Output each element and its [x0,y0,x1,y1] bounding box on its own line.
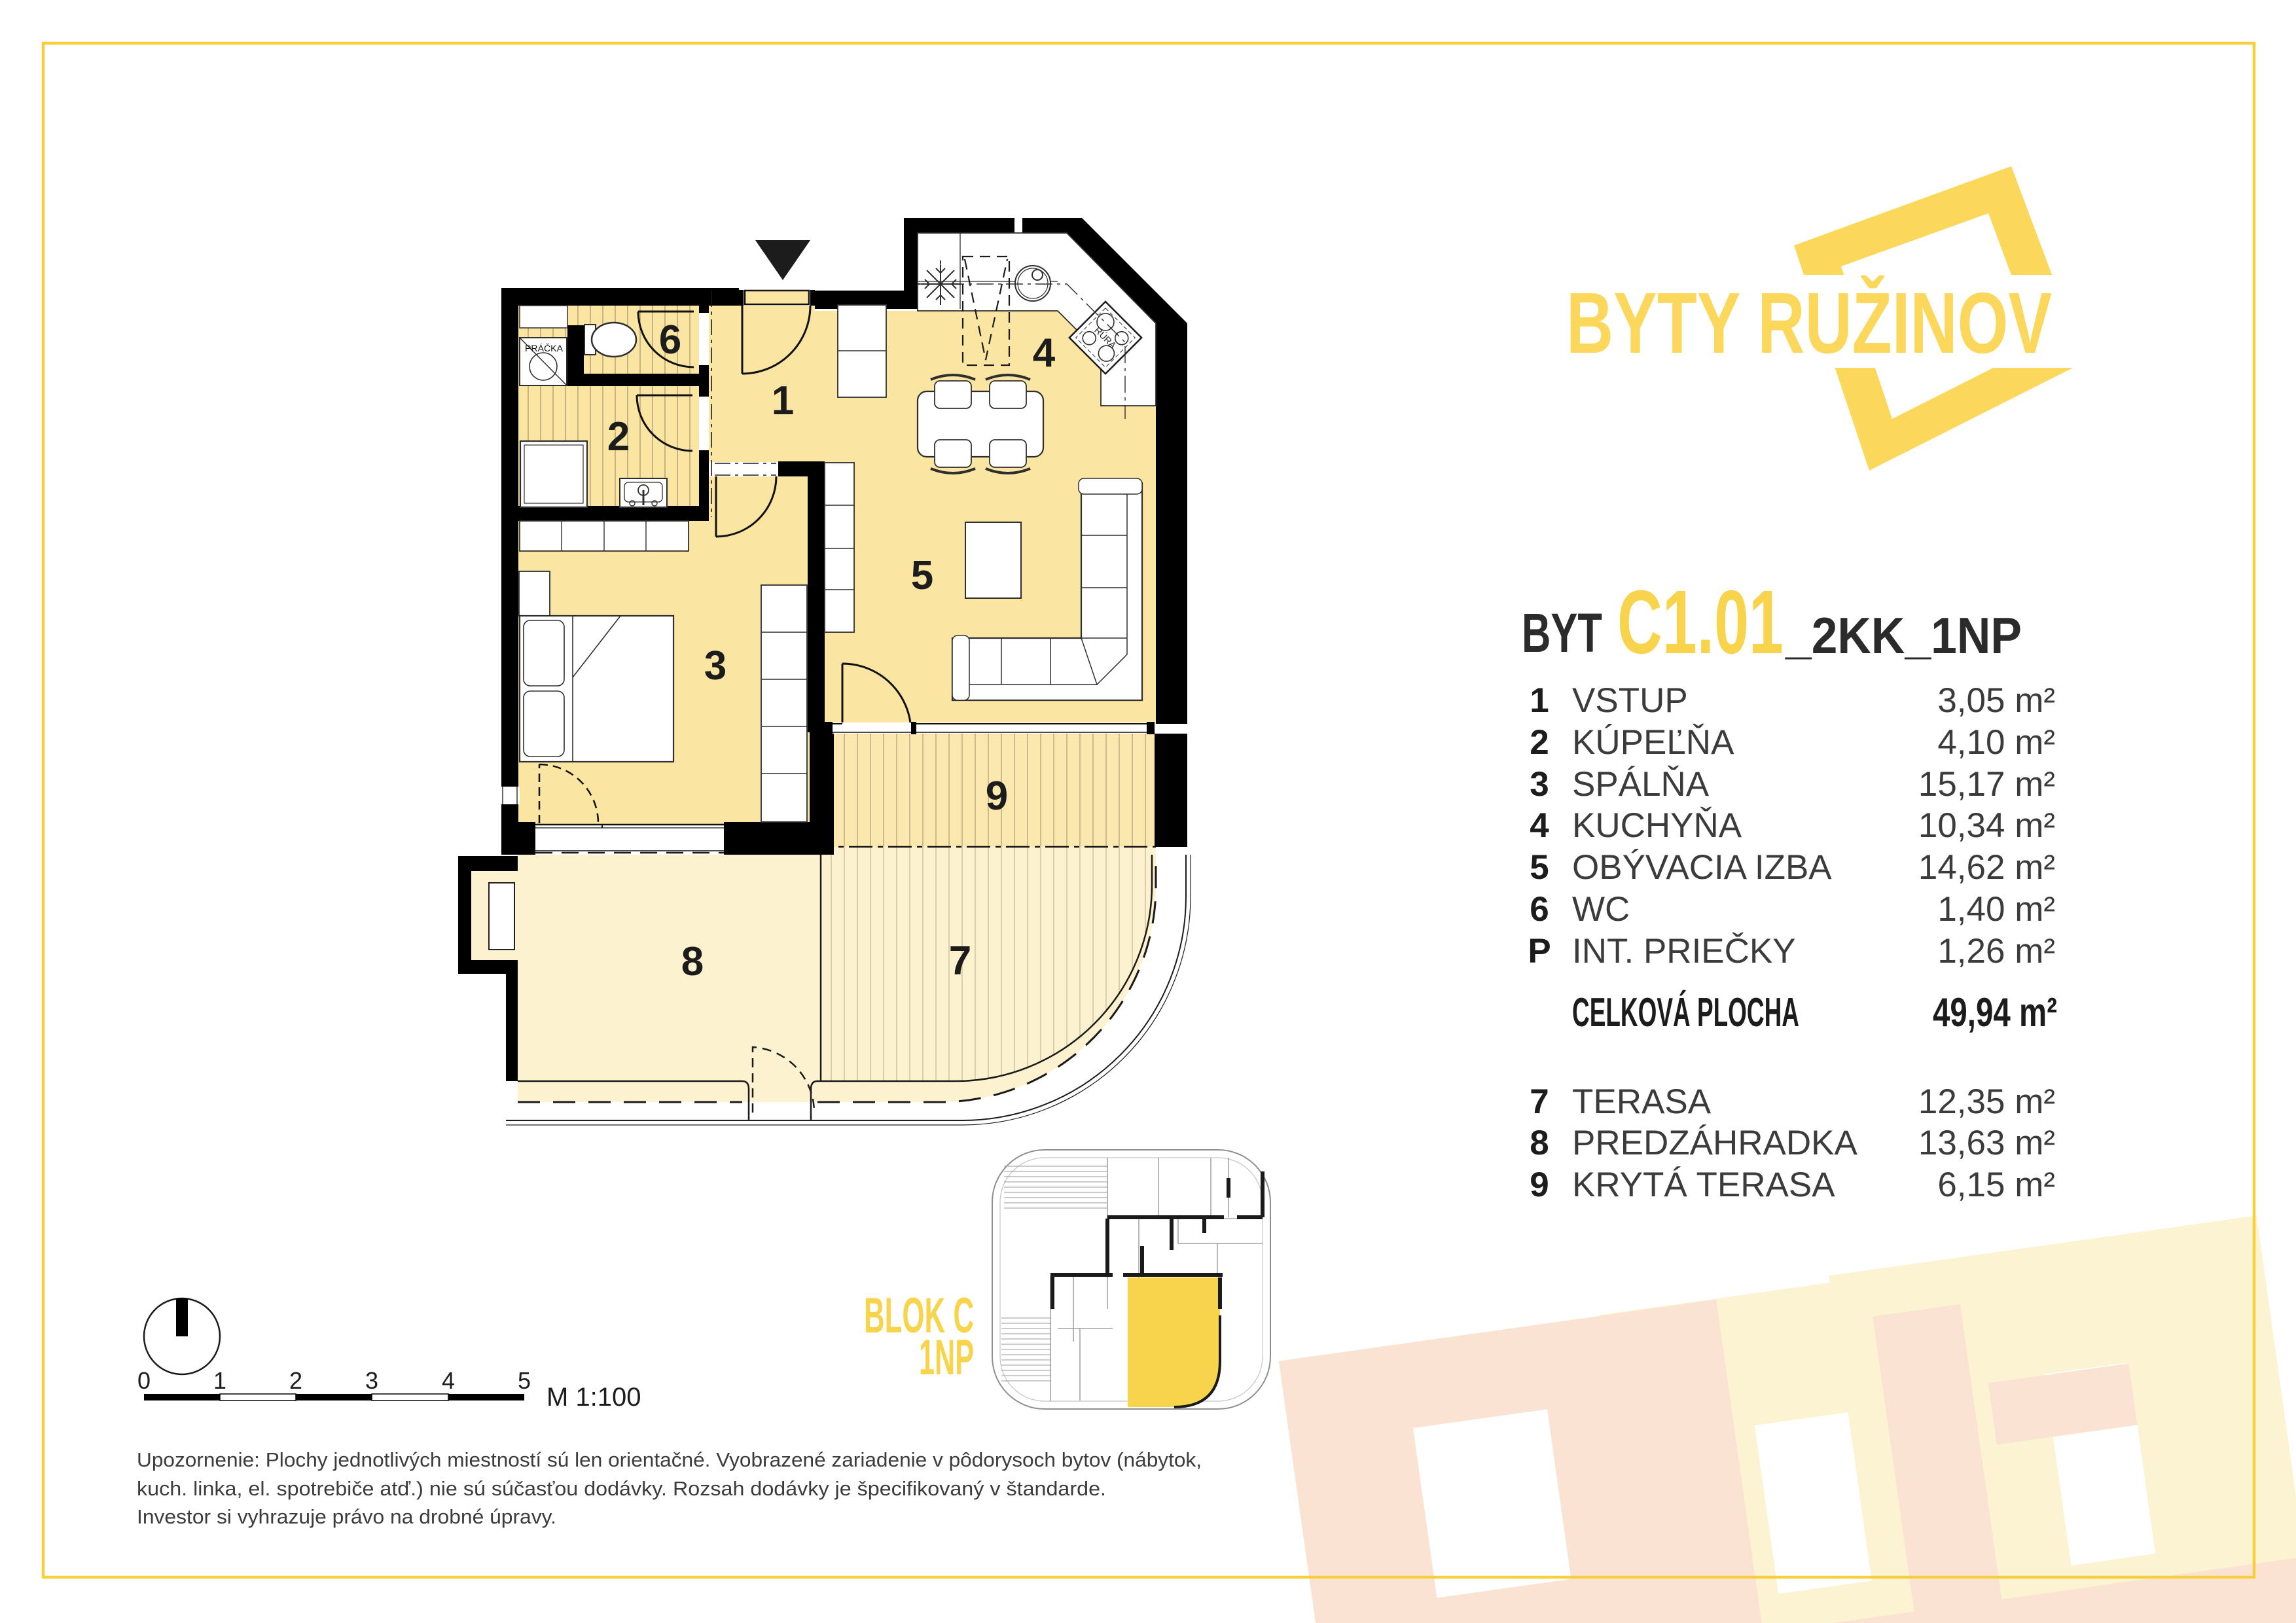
svg-text:BYT: BYT [1522,602,1602,664]
svg-text:1: 1 [213,1367,226,1394]
svg-text:49,94 m²: 49,94 m² [1933,990,2057,1035]
svg-text:8: 8 [681,939,703,984]
svg-text:6: 6 [1530,890,1549,929]
svg-text:9: 9 [986,774,1007,819]
svg-text:5: 5 [518,1367,531,1394]
svg-text:WC: WC [1572,890,1630,929]
svg-text:2: 2 [1530,723,1549,762]
svg-text:12,35 m²: 12,35 m² [1918,1082,2055,1121]
svg-text:0: 0 [137,1367,151,1394]
svg-text:15,17 m²: 15,17 m² [1918,765,2055,804]
svg-text:KÚPEĽŇA: KÚPEĽŇA [1572,723,1734,762]
svg-text:kuch. linka, el. spotrebiče at: kuch. linka, el. spotrebiče atď.) nie sú… [137,1477,1106,1500]
svg-text:Investor si vyhrazuje právo na: Investor si vyhrazuje právo na drobné úp… [137,1505,556,1528]
svg-text:1,40 m²: 1,40 m² [1937,890,2055,929]
svg-text:VSTUP: VSTUP [1572,681,1688,720]
svg-text:2: 2 [289,1367,302,1394]
svg-text:3: 3 [1530,765,1549,804]
svg-text:4: 4 [1033,330,1056,376]
svg-text:3: 3 [704,643,726,688]
svg-text:_2KK_1NP: _2KK_1NP [1785,607,2022,664]
svg-text:14,62 m²: 14,62 m² [1918,848,2055,887]
svg-text:M 1:100: M 1:100 [547,1383,641,1412]
svg-text:4: 4 [1530,806,1549,845]
svg-text:BYTY RUŽINOV: BYTY RUŽINOV [1566,275,2052,371]
svg-text:1: 1 [772,378,793,423]
svg-text:13,63 m²: 13,63 m² [1918,1124,2055,1162]
svg-text:OBÝVACIA IZBA: OBÝVACIA IZBA [1572,848,1832,887]
svg-text:INT. PRIEČKY: INT. PRIEČKY [1572,932,1796,971]
svg-text:KUCHYŇA: KUCHYŇA [1572,806,1742,845]
svg-text:1NP: 1NP [919,1330,974,1385]
svg-text:C1.01: C1.01 [1617,572,1784,673]
svg-text:9: 9 [1530,1166,1549,1204]
svg-text:4,10 m²: 4,10 m² [1937,723,2055,762]
svg-text:KRYTÁ TERASA: KRYTÁ TERASA [1572,1166,1835,1204]
svg-text:8: 8 [1530,1124,1549,1162]
svg-text:6,15 m²: 6,15 m² [1937,1166,2055,1204]
svg-text:10,34 m²: 10,34 m² [1918,806,2055,845]
svg-text:5: 5 [911,553,933,598]
svg-text:5: 5 [1530,848,1549,887]
svg-text:1: 1 [1530,681,1549,720]
svg-text:SPÁLŇA: SPÁLŇA [1572,765,1710,804]
svg-text:PRÁČKA: PRÁČKA [525,343,564,353]
svg-text:1,26 m²: 1,26 m² [1937,932,2055,971]
svg-text:P: P [1528,932,1551,971]
svg-text:3: 3 [365,1367,378,1394]
svg-text:7: 7 [1530,1082,1549,1121]
svg-text:3,05 m²: 3,05 m² [1937,681,2055,720]
svg-text:TERASA: TERASA [1572,1082,1712,1121]
svg-text:CELKOVÁ PLOCHA: CELKOVÁ PLOCHA [1572,990,1799,1035]
svg-text:4: 4 [442,1367,455,1394]
svg-text:PREDZÁHRADKA: PREDZÁHRADKA [1572,1124,1858,1162]
svg-text:2: 2 [607,414,628,459]
svg-text:Upozornenie: Plochy jednotlivý: Upozornenie: Plochy jednotlivých miestno… [137,1448,1202,1471]
svg-text:6: 6 [659,317,681,363]
svg-text:7: 7 [949,938,970,984]
